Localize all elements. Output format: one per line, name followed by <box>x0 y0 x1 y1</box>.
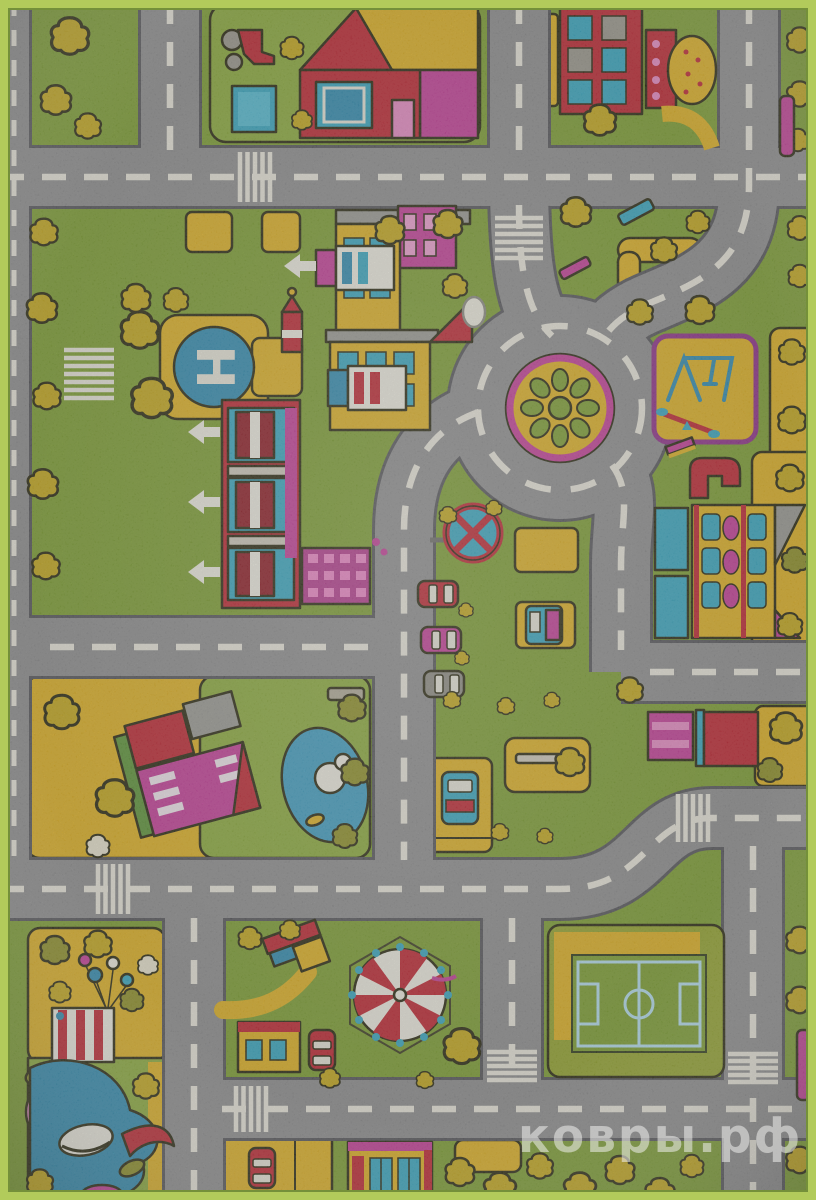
rug-artwork: H <box>0 0 816 1200</box>
rug-photo: H <box>0 0 816 1200</box>
photo-vignette <box>0 0 816 1200</box>
watermark-text: ковры.рф <box>518 1109 802 1164</box>
